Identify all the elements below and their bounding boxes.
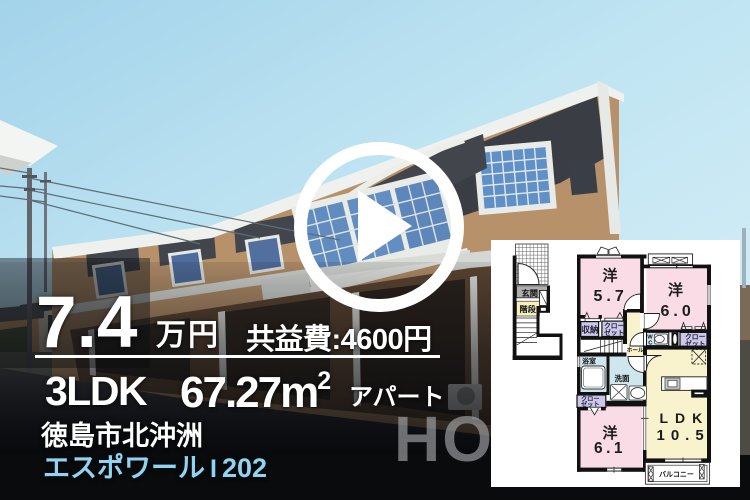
svg-text:洋: 洋	[668, 281, 683, 299]
svg-text:洗面: 洗面	[615, 373, 630, 383]
svg-text:洋: 洋	[603, 267, 618, 285]
svg-text:クロー: クロー	[604, 321, 625, 330]
svg-text:10.5: 10.5	[657, 427, 710, 444]
svg-text:バルコニー: バルコニー	[659, 471, 694, 479]
svg-text:階段: 階段	[520, 304, 537, 314]
svg-text:クロー: クロー	[685, 332, 706, 341]
svg-text:5.7: 5.7	[594, 288, 628, 305]
svg-text:ホール: ホール	[627, 347, 644, 354]
svg-text:玄関: 玄関	[522, 288, 538, 298]
svg-text:浴室: 浴室	[582, 357, 596, 366]
svg-text:収納: 収納	[582, 325, 599, 335]
svg-text:6.1: 6.1	[594, 440, 626, 457]
svg-text:6.0: 6.0	[661, 303, 695, 320]
svg-text:LDK: LDK	[660, 410, 710, 426]
svg-text:ゼット: ゼット	[604, 328, 624, 337]
